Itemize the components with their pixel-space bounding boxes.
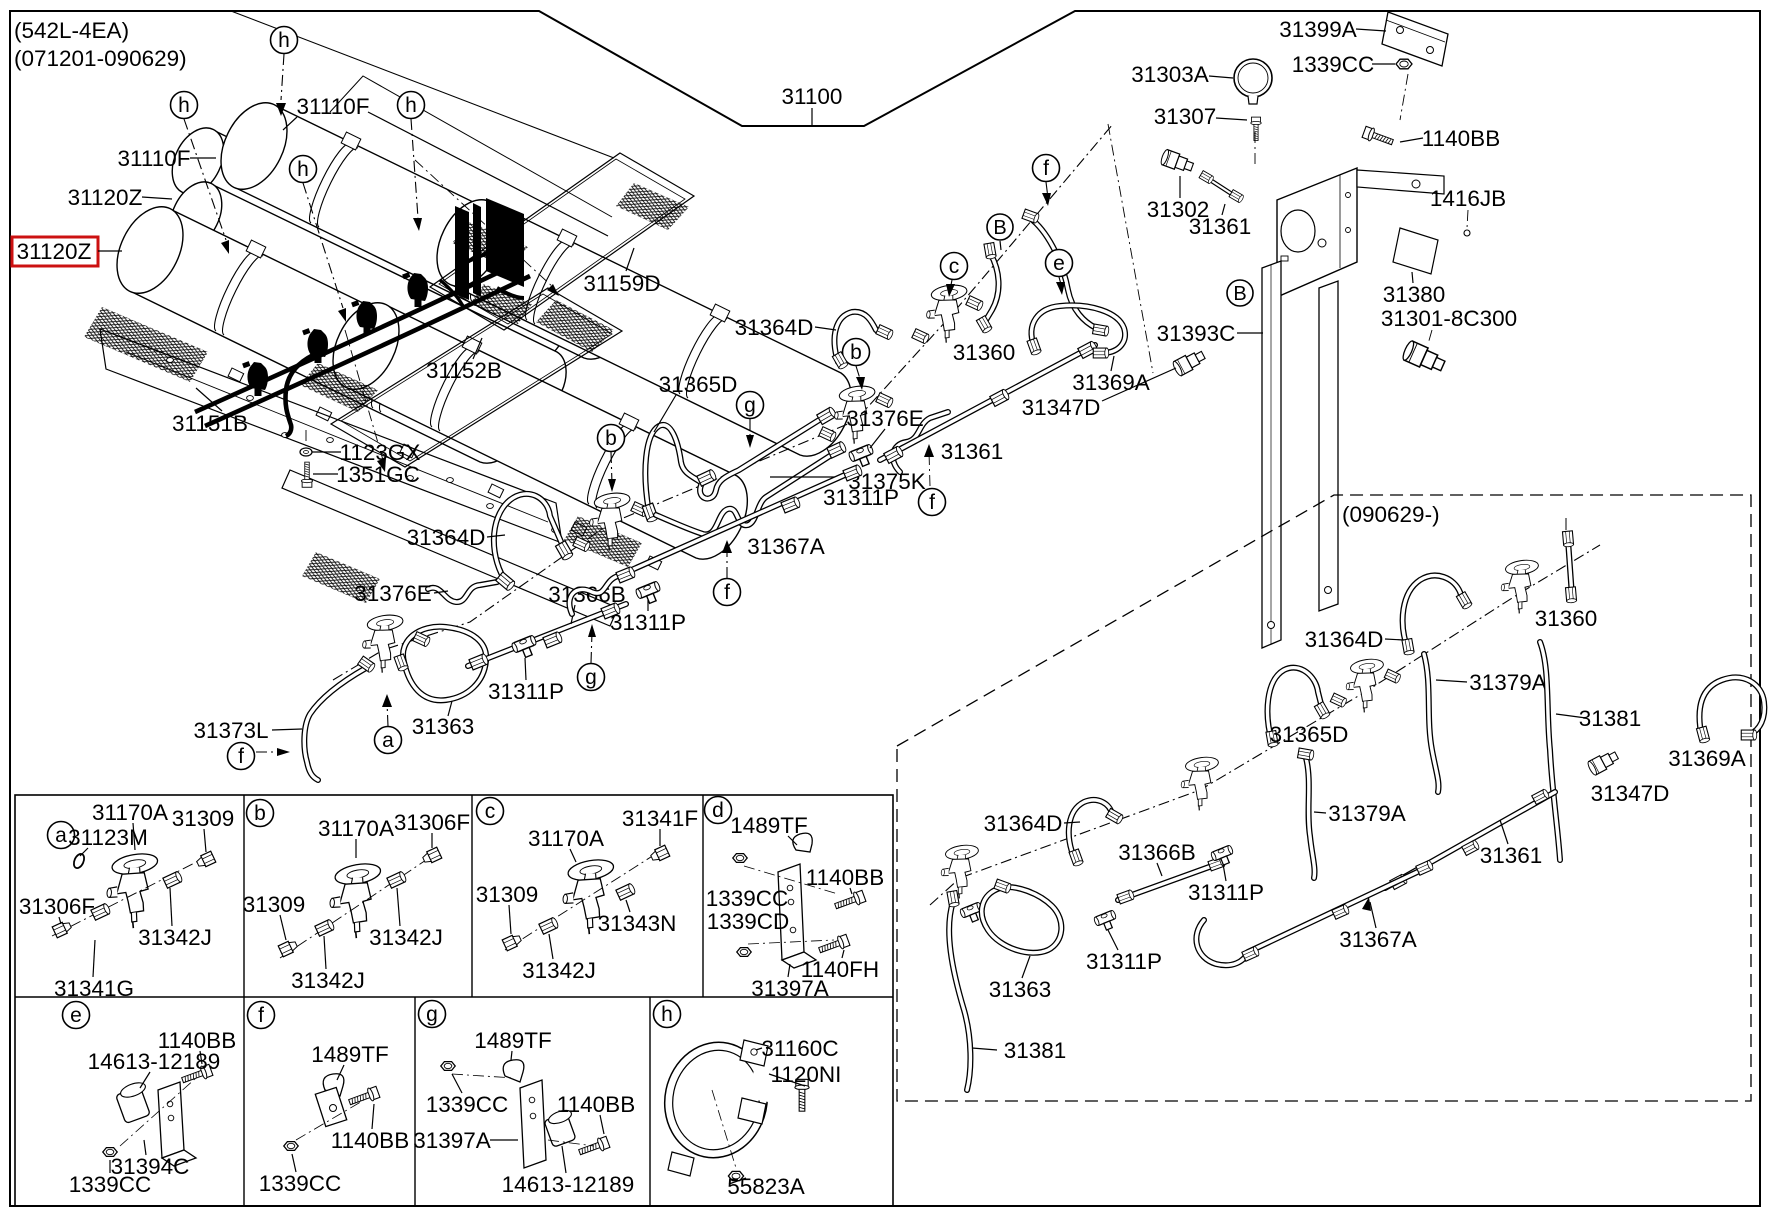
svg-text:31360: 31360	[1535, 606, 1598, 631]
svg-text:31341F: 31341F	[622, 806, 698, 831]
svg-text:1140BB: 1140BB	[1422, 126, 1500, 151]
svg-text:31347D: 31347D	[1591, 781, 1670, 806]
svg-text:1339CD: 1339CD	[707, 909, 790, 934]
svg-text:1339CC: 1339CC	[1292, 52, 1375, 77]
svg-text:31342J: 31342J	[369, 925, 443, 950]
svg-text:31366B: 31366B	[1118, 840, 1196, 865]
svg-text:31110F: 31110F	[118, 146, 191, 171]
svg-text:f: f	[724, 581, 730, 604]
svg-text:31397A: 31397A	[751, 976, 829, 1001]
svg-text:31367A: 31367A	[747, 534, 825, 559]
svg-text:31342J: 31342J	[522, 958, 596, 983]
svg-text:31361: 31361	[1189, 214, 1252, 239]
svg-text:31369A: 31369A	[1072, 370, 1150, 395]
svg-text:31151B: 31151B	[172, 411, 248, 436]
svg-text:31364D: 31364D	[407, 525, 486, 550]
svg-text:31379A: 31379A	[1328, 801, 1406, 826]
svg-text:31376E: 31376E	[354, 581, 432, 606]
svg-text:31152B: 31152B	[426, 358, 502, 383]
svg-text:b: b	[605, 427, 617, 450]
svg-text:31170A: 31170A	[318, 816, 394, 841]
svg-text:1489TF: 1489TF	[311, 1042, 389, 1067]
svg-text:f: f	[1043, 157, 1049, 180]
svg-text:h: h	[661, 1003, 673, 1026]
svg-text:55823A: 55823A	[727, 1174, 805, 1199]
svg-text:31343N: 31343N	[598, 911, 677, 936]
svg-text:31309: 31309	[243, 892, 306, 917]
svg-text:a: a	[55, 824, 67, 847]
svg-text:31376E: 31376E	[846, 406, 924, 431]
svg-text:1140BB: 1140BB	[331, 1128, 409, 1153]
svg-text:31365D: 31365D	[659, 372, 738, 397]
svg-text:31159D: 31159D	[583, 271, 660, 296]
svg-text:31361: 31361	[941, 439, 1004, 464]
svg-text:31120Z: 31120Z	[68, 185, 143, 210]
svg-text:h: h	[297, 158, 309, 181]
svg-text:31379A: 31379A	[1469, 670, 1547, 695]
svg-text:a: a	[382, 729, 394, 752]
svg-text:31367A: 31367A	[1339, 927, 1417, 952]
svg-text:31399A: 31399A	[1279, 17, 1357, 42]
svg-text:31365D: 31365D	[1270, 722, 1349, 747]
svg-text:31363: 31363	[989, 977, 1052, 1002]
svg-text:1339CC: 1339CC	[426, 1092, 509, 1117]
svg-text:31380: 31380	[1383, 282, 1446, 307]
svg-text:1140BB: 1140BB	[557, 1092, 635, 1117]
svg-text:1339CC: 1339CC	[69, 1172, 152, 1197]
svg-text:31364D: 31364D	[735, 315, 814, 340]
svg-text:1120NI: 1120NI	[771, 1062, 842, 1087]
svg-text:14613-12189: 14613-12189	[88, 1049, 221, 1074]
svg-text:31311P: 31311P	[823, 485, 899, 510]
svg-text:31309: 31309	[172, 806, 235, 831]
svg-text:31397A: 31397A	[413, 1128, 491, 1153]
svg-text:31364D: 31364D	[984, 811, 1063, 836]
svg-text:B: B	[993, 217, 1006, 239]
svg-text:31342J: 31342J	[291, 968, 365, 993]
svg-text:f: f	[258, 1004, 264, 1027]
svg-text:g: g	[426, 1003, 438, 1026]
svg-text:31366B: 31366B	[548, 582, 626, 607]
svg-text:b: b	[850, 341, 862, 364]
svg-text:1339CC: 1339CC	[706, 886, 789, 911]
svg-text:(542L-4EA): (542L-4EA)	[14, 18, 129, 43]
svg-text:31309: 31309	[476, 882, 539, 907]
svg-text:31100: 31100	[782, 84, 843, 109]
svg-text:1351GC: 1351GC	[336, 462, 420, 487]
svg-text:31160C: 31160C	[761, 1036, 838, 1061]
svg-text:1339CC: 1339CC	[259, 1171, 342, 1196]
svg-text:c: c	[949, 255, 960, 278]
svg-text:1489TF: 1489TF	[730, 813, 808, 838]
svg-text:31301-8C300: 31301-8C300	[1381, 306, 1517, 331]
svg-text:31381: 31381	[1004, 1038, 1067, 1063]
svg-text:31123M: 31123M	[68, 825, 148, 850]
svg-text:(090629-): (090629-)	[1342, 502, 1440, 527]
svg-text:31311P: 31311P	[1188, 880, 1264, 905]
svg-text:31311P: 31311P	[1086, 949, 1162, 974]
svg-text:31170A: 31170A	[528, 826, 604, 851]
svg-text:1140BB: 1140BB	[806, 865, 884, 890]
svg-text:h: h	[405, 94, 417, 117]
svg-text:31361: 31361	[1480, 843, 1543, 868]
svg-text:f: f	[238, 745, 244, 768]
svg-text:31307: 31307	[1154, 104, 1217, 129]
svg-text:g: g	[585, 666, 597, 689]
svg-text:f: f	[929, 491, 935, 514]
svg-text:31373L: 31373L	[193, 718, 268, 743]
svg-text:e: e	[70, 1004, 82, 1027]
svg-text:d: d	[712, 799, 724, 822]
svg-text:31120Z: 31120Z	[17, 239, 92, 264]
svg-text:(071201-090629): (071201-090629)	[14, 46, 187, 71]
svg-text:e: e	[1053, 252, 1065, 275]
svg-text:31347D: 31347D	[1022, 395, 1101, 420]
svg-text:31311P: 31311P	[488, 679, 564, 704]
svg-text:31306F: 31306F	[19, 894, 95, 919]
svg-text:31360: 31360	[953, 340, 1016, 365]
svg-text:b: b	[254, 802, 266, 825]
svg-text:31364D: 31364D	[1305, 627, 1384, 652]
svg-text:31342J: 31342J	[138, 925, 212, 950]
svg-text:1489TF: 1489TF	[474, 1028, 552, 1053]
svg-text:h: h	[278, 29, 290, 52]
svg-text:31381: 31381	[1579, 706, 1642, 731]
svg-text:31110F: 31110F	[297, 94, 370, 119]
svg-text:31363: 31363	[412, 714, 475, 739]
svg-text:14613-12189: 14613-12189	[502, 1172, 635, 1197]
svg-text:g: g	[744, 394, 756, 417]
svg-text:31311P: 31311P	[610, 610, 686, 635]
svg-text:31170A: 31170A	[92, 800, 168, 825]
svg-text:31393C: 31393C	[1157, 321, 1236, 346]
svg-text:31369A: 31369A	[1668, 746, 1746, 771]
svg-text:h: h	[178, 94, 190, 117]
svg-text:31341G: 31341G	[54, 976, 134, 1001]
svg-text:31303A: 31303A	[1131, 62, 1209, 87]
svg-text:c: c	[485, 800, 496, 823]
svg-text:31306F: 31306F	[394, 810, 470, 835]
svg-text:B: B	[1233, 283, 1246, 305]
svg-text:1416JB: 1416JB	[1430, 186, 1506, 211]
